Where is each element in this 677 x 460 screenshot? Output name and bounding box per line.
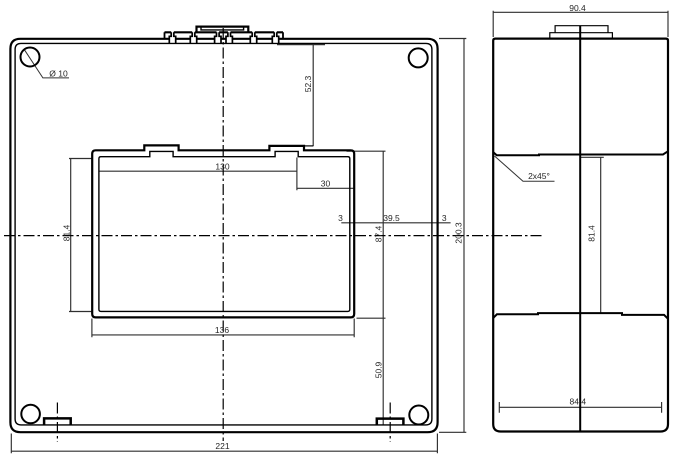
svg-text:200.3: 200.3 bbox=[454, 222, 464, 244]
svg-text:2x45°: 2x45° bbox=[528, 171, 550, 181]
svg-text:87.4: 87.4 bbox=[374, 225, 384, 242]
svg-text:3: 3 bbox=[338, 213, 343, 223]
svg-text:84.4: 84.4 bbox=[570, 397, 587, 407]
svg-text:52.3: 52.3 bbox=[303, 75, 313, 92]
svg-text:30: 30 bbox=[321, 179, 331, 189]
svg-text:81.4: 81.4 bbox=[587, 225, 597, 242]
svg-text:130: 130 bbox=[215, 162, 229, 172]
svg-text:90.4: 90.4 bbox=[569, 3, 586, 13]
svg-text:39.5: 39.5 bbox=[383, 213, 400, 223]
svg-text:3: 3 bbox=[442, 213, 447, 223]
svg-text:136: 136 bbox=[215, 325, 229, 335]
svg-text:Ø 10: Ø 10 bbox=[49, 68, 68, 78]
svg-text:81.4: 81.4 bbox=[61, 224, 71, 241]
svg-text:221: 221 bbox=[215, 441, 229, 451]
svg-text:50.9: 50.9 bbox=[374, 361, 384, 378]
